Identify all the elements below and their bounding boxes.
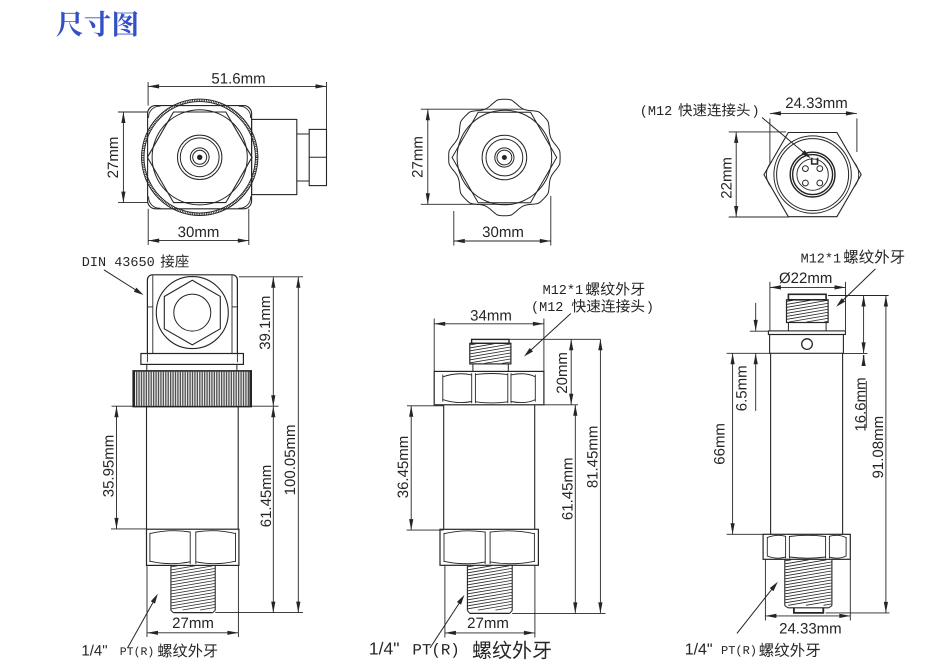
svg-text:91.08mm: 91.08mm (870, 416, 887, 479)
svg-text:27mm: 27mm (105, 137, 122, 179)
svg-text:22mm: 22mm (718, 157, 735, 199)
svg-text:51.6mm: 51.6mm (211, 71, 265, 88)
svg-text:27mm: 27mm (172, 615, 214, 632)
svg-text:66mm: 66mm (711, 423, 728, 465)
svg-text:1/4": 1/4" (369, 639, 400, 659)
svg-text:61.45mm: 61.45mm (559, 458, 576, 521)
svg-text:24.33mm: 24.33mm (779, 621, 842, 638)
svg-text:61.45mm: 61.45mm (258, 465, 275, 528)
svg-text:27mm: 27mm (410, 136, 427, 178)
svg-text:M12*1: M12*1 (801, 252, 842, 267)
svg-text:1/4": 1/4" (81, 642, 107, 659)
svg-text:36.45mm: 36.45mm (395, 436, 412, 499)
svg-text:100.05mm: 100.05mm (282, 424, 299, 495)
svg-text:(M12: (M12 (640, 105, 672, 120)
svg-text:6.5mm: 6.5mm (734, 365, 751, 411)
svg-text:(M12: (M12 (531, 301, 563, 316)
svg-text:PT(R): PT(R) (721, 644, 757, 658)
svg-text:30mm: 30mm (482, 224, 524, 241)
svg-text:39.1mm: 39.1mm (257, 296, 274, 350)
svg-text:20mm: 20mm (554, 352, 571, 394)
svg-text:Ø22mm: Ø22mm (779, 270, 832, 287)
svg-text:1/4": 1/4" (685, 641, 713, 658)
svg-text:PT(R): PT(R) (412, 641, 459, 659)
svg-text:81.45mm: 81.45mm (584, 426, 601, 489)
svg-text:): ) (646, 301, 654, 316)
svg-text:30mm: 30mm (178, 224, 220, 241)
svg-text:PT(R): PT(R) (120, 646, 155, 659)
svg-text:M12*1: M12*1 (543, 284, 584, 299)
svg-text:24.33mm: 24.33mm (785, 95, 848, 112)
svg-text:): ) (752, 105, 760, 120)
svg-text:27mm: 27mm (467, 615, 509, 632)
svg-text:DIN 43650: DIN 43650 (82, 256, 155, 271)
svg-text:35.95mm: 35.95mm (100, 435, 117, 498)
svg-text:34mm: 34mm (470, 307, 512, 324)
